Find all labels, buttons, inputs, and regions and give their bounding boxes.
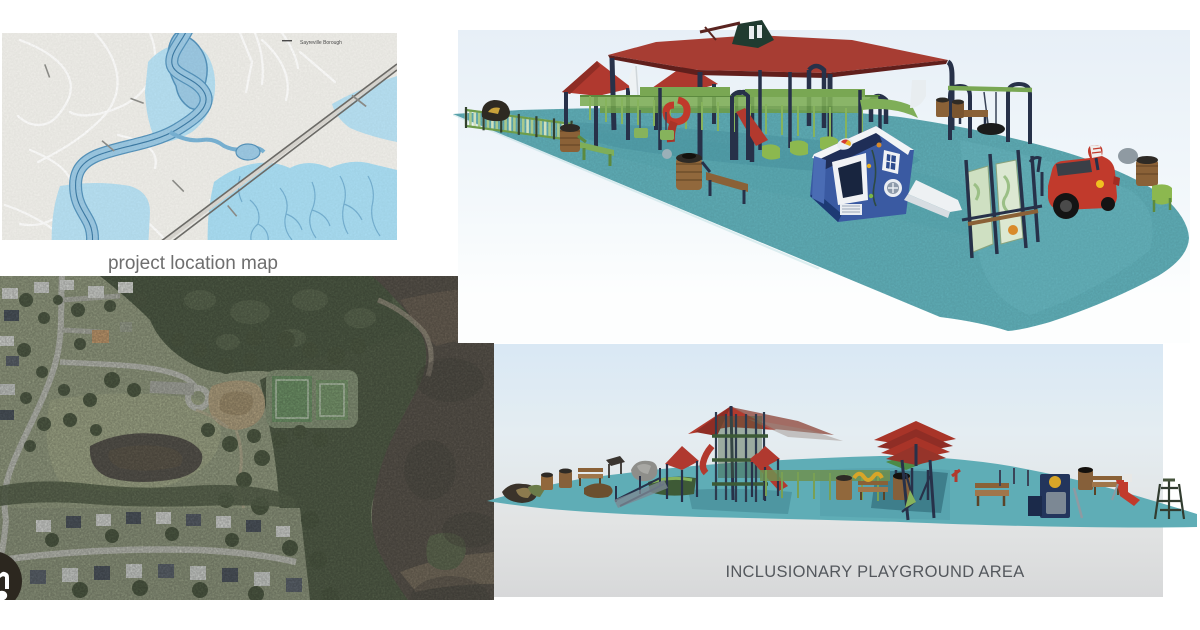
svg-text:project location map: project location map (108, 253, 278, 274)
svg-text:Sayreville Borough: Sayreville Borough (300, 40, 342, 46)
svg-text:INCLUSIONARY PLAYGROUND AREA: INCLUSIONARY PLAYGROUND AREA (725, 563, 1024, 581)
